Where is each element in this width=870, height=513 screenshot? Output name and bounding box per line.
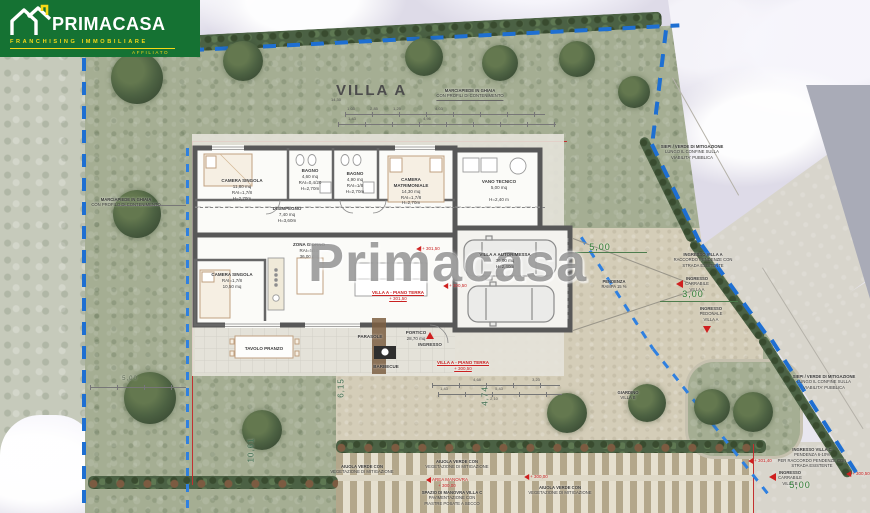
label-parasole: PARASOLE [358, 334, 383, 340]
room-area: 28,70 mq [407, 336, 426, 341]
note-aiuola-right: AIUOLA VERDE CON VEGETAZIONE DI MITIGAZI… [528, 485, 591, 496]
note-aiuola-left: AIUOLA VERDE CON VEGETAZIONE DI MITIGAZI… [330, 464, 393, 475]
tree [482, 45, 518, 81]
logo-divider [10, 48, 175, 49]
room-area: 36,00 mq [300, 254, 319, 259]
dim-value: 6,15 [337, 378, 346, 398]
room-name: VILLA A AUTORIMESSA [479, 252, 530, 257]
dim-value: 5,00 [122, 376, 138, 382]
floorplan-svg [180, 120, 580, 380]
dim-chain-west [90, 385, 186, 390]
dim-value: 1,43 [348, 116, 356, 121]
note-line: VIABILITA' PUBBLICA [803, 385, 845, 390]
dim-small: 1,03 [347, 106, 355, 111]
dim-chain-top-2 [338, 122, 556, 127]
note-line: VEGETAZIONE DI MITIGAZIONE [330, 469, 393, 474]
room-height: H=2,70m [402, 200, 420, 205]
label-text: BARBECUE [373, 364, 399, 369]
room-area: 5,00 mq [491, 185, 507, 190]
level-name: VILLA A - PIANO TERRA [372, 290, 424, 295]
note-pendenza-rampa: PENDENZA RAMPA 15 % [601, 279, 626, 290]
primacasa-logo: PRIMACASA FRANCHISING IMMOBILIARE AFFILI… [0, 0, 200, 57]
room-height: H=2,40 m [489, 197, 509, 202]
dim-small: 1,43 [440, 386, 448, 391]
note-line: STRADA ESISTENTE [791, 463, 832, 468]
dim-small: 4,96 [423, 116, 431, 121]
note-line: PEDONALE [700, 311, 723, 316]
room-label-vano-tecnico: VANO TECNICO 5,00 mq H=2,40 m [482, 179, 516, 202]
room-height: H=2,70m [346, 189, 364, 194]
room-label-bagno-2: BAGNO 4,90 mq RAI=1/8 H=2,70m [346, 171, 364, 194]
dim-small: 4,68 [473, 377, 481, 382]
room-label-disimpegno: DISIMPEGNO 7,40 mq H=3,60m [273, 206, 302, 224]
note-line: RACCORDO PENDENZE CON [674, 257, 733, 262]
room-name: CAMERA SINGOLA [221, 178, 262, 183]
note-aiuola-center: AIUOLA VERDE CON VEGETAZIONE DI MITIGAZI… [425, 459, 488, 470]
logo-brand-text: PRIMACASA [52, 14, 166, 35]
room-name: CAMERA [401, 177, 421, 182]
room-rai: RAI=5/10 [300, 248, 319, 253]
dim-green-vertical: 4,74 [481, 386, 490, 406]
note-ingresso-villa-c: INGRESSO VILLA C PENDENZA 6-10% PER RACC… [778, 447, 847, 469]
marker-value: + 301,40 [754, 458, 772, 463]
note-line: PENDENZA 6-10% [794, 452, 830, 457]
dim-side-yard: 5,00 [122, 376, 138, 382]
note-line: LUNGO IL CONFINE SULLA [797, 379, 851, 384]
label-text: TAVOLO PRANZO [245, 346, 283, 351]
tree [694, 389, 730, 425]
note-line: CARRABILE [685, 281, 709, 286]
marker-value: + 300,00 [438, 483, 456, 488]
dim-small: 5,43 [495, 386, 503, 391]
note-line: RAMPA 15 % [601, 284, 626, 289]
level-value: + 301,50 [389, 296, 407, 301]
room-label-autorimessa: VILLA A AUTORIMESSA 36,00 mq H=2,40m [479, 252, 530, 270]
level-label-piano-terra-2: VILLA A - PIANO TERRA + 300,50 [437, 360, 489, 372]
room-height: H=2,40m [496, 264, 514, 269]
room-name: VANO TECNICO [482, 179, 516, 184]
label-tavolo-pranzo: TAVOLO PRANZO [245, 346, 283, 352]
room-height: H=3,60m [278, 218, 296, 223]
dim-green-vertical: 6,15 [337, 378, 346, 398]
tree [733, 392, 773, 432]
logo-tagline: FRANCHISING IMMOBILIARE [10, 39, 148, 45]
dim-value: 4,68 [473, 377, 481, 382]
dim-value: 1,43 [440, 386, 448, 391]
room-area: 4,90 mq [347, 177, 363, 182]
tree [559, 41, 595, 77]
note-giardino-villa-b: GIARDINO VILLA B [618, 390, 639, 401]
barbecue-grill [381, 348, 389, 356]
label-ingresso-casa: INGRESSO [418, 342, 442, 348]
note-line: LUNGO IL CONFINE SULLA [665, 149, 719, 154]
room-rai: RAI=1,7/8 [232, 190, 252, 195]
tree [547, 393, 587, 433]
marker-value: + 300,50 [449, 283, 467, 288]
dim-line-gate [660, 301, 738, 302]
note-spazio-manovra: SPAZIO DI MANOVRA VILLA C PAVIMENTAZIONE… [422, 490, 483, 506]
dim-line-ramp [575, 252, 647, 253]
room-height: H=2,70m [301, 186, 319, 191]
note-line: VILLA A [704, 317, 719, 322]
room-label-camera-matrimoniale: CAMERA MATRIMONIALE 14,30 mq RAI=1,7/8 H… [394, 177, 429, 206]
logo-affiliato: AFFILIATO [132, 50, 169, 55]
dim-value: 5,00 [789, 480, 811, 490]
room-area: 11,80 mq [233, 184, 251, 189]
entrance-triangle-icon [426, 332, 434, 339]
level-marker: + 300,50 [846, 471, 870, 477]
dim-small: 4,03 [435, 106, 443, 111]
note-path-top: MARCIAPIEDE IN GHIAIA CON PROFILI DI CON… [436, 88, 503, 101]
dim-value: 3,00 [682, 289, 704, 299]
entrance-triangle-icon [676, 280, 683, 288]
note-line: VEGETAZIONE DI MITIGAZIONE [425, 464, 488, 469]
room-name: CAMERA SINGOLA [211, 272, 252, 277]
marker-value: + 301,50 [422, 246, 440, 251]
label-text: AREA MANOVRA [432, 477, 468, 482]
note-siepi-upper: SIEPI / VERDE DI MITIGAZIONE LUNGO IL CO… [661, 144, 724, 160]
dim-small: 2,85 [370, 106, 378, 111]
note-line: VILLA B [620, 395, 635, 400]
level-label-piano-terra-1: VILLA A - PIANO TERRA + 301,50 [372, 290, 424, 302]
room-label-camera-singola-2: CAMERA SINGOLA RAI=1,7/8 10,50 mq [211, 272, 252, 290]
room-rai: RAI=1/8 [347, 183, 363, 188]
level-marker: + 301,40 [748, 458, 772, 464]
site-plan-canvas: VILLA A MARCIAPIEDE IN GHIAIA CON PROFIL… [0, 0, 870, 513]
room-label-portico: PORTICO 28,70 mq [406, 330, 427, 342]
room-name: BAGNO [302, 168, 319, 173]
dim-small: 14,30 [331, 97, 341, 102]
house-logo-icon [8, 3, 54, 39]
dim-value: 1,03 [347, 106, 355, 111]
tree [111, 52, 163, 104]
note-ingresso-pedonale: INGRESSO PEDONALE VILLA A [700, 306, 723, 322]
level-name: VILLA A - PIANO TERRA [437, 360, 489, 365]
label-text: PARASOLE [358, 334, 383, 339]
dim-value: 4,03 [435, 106, 443, 111]
room-name-2: MATRIMONIALE [394, 183, 429, 188]
dim-small: 2,10 [490, 396, 498, 401]
dim-small: 1,25 [393, 106, 401, 111]
note-siepi-lower: SIEPI / VERDE DI MITIGAZIONE LUNGO IL CO… [793, 374, 856, 390]
note-path-left: MARCIAPIEDE IN GHIAIA CON PROFILO DI CON… [91, 197, 160, 208]
note-line: CON PROFILI DI CONTENIMENTO [436, 93, 503, 98]
label-barbecue: BARBECUE [373, 364, 399, 370]
dim-value: 4,96 [423, 116, 431, 121]
dim-value: 2,85 [370, 106, 378, 111]
room-area: 7,40 mq [279, 212, 295, 217]
marker-value: + 300,00 [530, 474, 548, 479]
room-rai: RAI=0,4/20 [299, 180, 322, 185]
dim-value: 5,43 [495, 386, 503, 391]
dim-value: 2,10 [490, 396, 498, 401]
plan-title: VILLA A [336, 82, 407, 99]
dim-value: 5,00 [589, 242, 611, 252]
dim-small: 3,23 [532, 377, 540, 382]
dim-green: 3,00 [682, 289, 704, 299]
room-area: 36,00 mq [496, 258, 515, 263]
tree [405, 38, 443, 76]
room-rai: RAI=1,7/8 [222, 278, 242, 283]
dim-value: 4,74 [481, 386, 490, 406]
room-rai: RAI=1,7/8 [401, 195, 421, 200]
note-line: VEGETAZIONE DI MITIGAZIONE [528, 490, 591, 495]
room-area: 10,50 mq [223, 284, 242, 289]
level-marker: + 300,00 [524, 474, 548, 480]
dim-value: 10,61 [247, 437, 256, 462]
room-name: BAGNO [347, 171, 364, 176]
dim-value: 3,23 [532, 377, 540, 382]
level-marker: + 300,50 [443, 283, 467, 289]
room-name: ZONA GIORNO [293, 242, 325, 247]
tech-room-equipment [463, 158, 526, 174]
level-value: + 300,50 [454, 366, 472, 371]
dim-value: 1,25 [393, 106, 401, 111]
note-line: PAVIMENTAZIONE CON [429, 495, 476, 500]
section-dashed-line [195, 207, 545, 208]
note-line: PIASTRE POSATE A SECCO [424, 501, 479, 506]
note-line: STRADA ESISTENTE [682, 263, 723, 268]
dim-chain-bottom-2 [438, 392, 562, 397]
note-line: CON PROFILO DI CONTENIMENTO [91, 202, 160, 207]
entrance-triangle-icon [769, 473, 776, 481]
dim-green-vertical: 10,61 [247, 437, 256, 462]
room-area: 14,30 mq [402, 189, 421, 194]
dim-chain-top-1 [345, 112, 545, 117]
room-label-camera-singola-1: CAMERA SINGOLA 11,80 mq RAI=1,7/8 H=2,70… [221, 178, 262, 201]
dim-small: 1,43 [348, 116, 356, 121]
tree [618, 76, 650, 108]
car [468, 282, 554, 326]
room-area: 4,60 mq [302, 174, 318, 179]
dim-green: 5,00 [589, 242, 611, 252]
room-height: H=2,70m [233, 196, 251, 201]
room-name: DISIMPEGNO [273, 206, 302, 211]
room-label-zona-giorno: ZONA GIORNO RAI=5/10 36,00 mq [293, 242, 325, 260]
boundary-blue-left [82, 58, 86, 513]
entrance-triangle-icon [703, 326, 711, 333]
tree [223, 41, 263, 81]
note-line: VIABILITA' PUBBLICA [671, 155, 713, 160]
hedge-south-west [88, 476, 338, 489]
label-text: INGRESSO [418, 342, 442, 347]
level-marker: + 301,50 [416, 246, 440, 252]
label-area-manovra: AREA MANOVRA + 300,00 [426, 477, 468, 489]
note-ingresso-villa-a: INGRESSO VILLA A RACCORDO PENDENZE CON S… [674, 252, 733, 268]
marker-value: + 300,50 [852, 471, 870, 476]
dim-value: 14,30 [331, 97, 341, 102]
hedge-parking [336, 440, 766, 453]
dim-green: 5,00 [789, 480, 811, 490]
room-label-bagno-1: BAGNO 4,60 mq RAI=0,4/20 H=2,70m [299, 168, 322, 191]
room-name: PORTICO [406, 330, 427, 335]
